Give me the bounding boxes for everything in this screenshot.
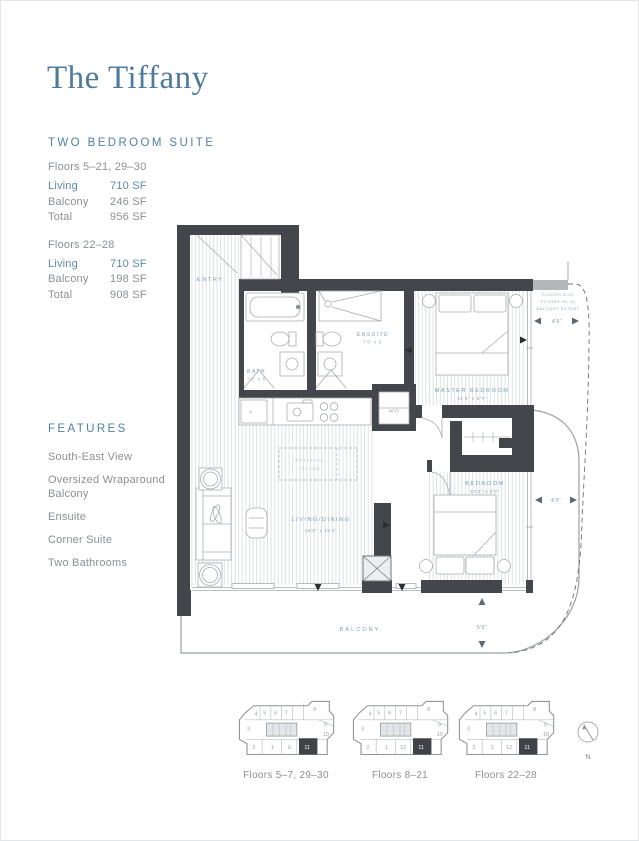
stat-label: Balcony	[48, 272, 110, 288]
kitchen-counter	[239, 398, 371, 425]
keyplan-unit: 4	[369, 712, 372, 718]
balcony-extent-note-line3: BALCONY EXTENT	[537, 306, 580, 311]
column-shaft	[363, 556, 391, 581]
bath-label: BATH	[247, 369, 266, 375]
keyplan-unit: 10	[323, 732, 329, 738]
floors-range: Floors 22–28	[48, 239, 178, 251]
keyplan-unit: 3	[247, 727, 250, 733]
keyplan-unit: 6	[274, 710, 277, 716]
stat-label: Living	[48, 179, 110, 195]
dim-east-upper: 4'6"	[552, 319, 562, 325]
stat-row: Living 710 SF	[48, 179, 178, 195]
keyplan-floors-5-7-29-30: 4 5 6 7 8 9 10 3 2 1 E 11 Floors 5–7, 29…	[231, 698, 341, 781]
keyplan-unit: 7	[505, 710, 508, 716]
keyplan-unit: 7	[285, 710, 288, 716]
floors-range: Floors 5–21, 29–30	[48, 161, 178, 173]
suite-stats: Floors 5–21, 29–30 Living 710 SF Balcony…	[48, 161, 178, 303]
washer-dryer	[379, 392, 409, 424]
ensuite-label: ENSUITE	[357, 332, 389, 338]
features-heading: FEATURES	[48, 423, 174, 435]
stat-row: Balcony 246 SF	[48, 195, 178, 211]
stat-row: Living 710 SF	[48, 257, 178, 273]
keyplan-unit-highlighted: 11	[304, 745, 310, 751]
entry-label: ENTRY	[197, 277, 223, 283]
keyplan-strip: 4 5 6 7 8 9 10 3 2 1 E 11 Floors 5–7, 29…	[0, 698, 639, 793]
bedroom-label: BEDROOM	[465, 481, 504, 487]
stat-row: Total 956 SF	[48, 210, 178, 226]
keyplan-unit: 2	[252, 745, 255, 751]
master-door-swing	[422, 418, 442, 438]
keyplan-floors-8-21: 4 5 6 7 8 9 10 3 2 1 12 11 Floors 8–21	[345, 698, 455, 781]
ensuite-shower	[319, 291, 381, 321]
keyplan-label: Floors 5–7, 29–30	[231, 770, 341, 781]
keyplan-unit: 3	[361, 727, 364, 733]
balcony-label: BALCONY	[340, 627, 381, 633]
master-bedroom-label: MASTER BEDROOM	[435, 388, 510, 394]
side-table	[199, 468, 222, 490]
keyplan-unit: E	[288, 745, 292, 751]
stat-row: Balcony 198 SF	[48, 272, 178, 288]
stat-value: 710 SF	[110, 257, 147, 273]
island-label-line1: OPTIONAL	[295, 458, 325, 463]
keyplan-label: Floors 22–28	[451, 770, 561, 781]
north-label: N	[585, 754, 590, 761]
stat-value: 956 SF	[110, 210, 147, 226]
stat-label: Balcony	[48, 195, 110, 211]
stat-value: 246 SF	[110, 195, 147, 211]
feature-item: Two Bathrooms	[48, 557, 174, 571]
north-compass: N	[572, 719, 604, 768]
keyplan-unit: 10	[437, 732, 443, 738]
keyplan-unit: 4	[255, 712, 258, 718]
master-bedroom-dims: 11'5" x 9'7"	[457, 396, 486, 401]
stat-value: 908 SF	[110, 288, 147, 304]
feature-item: Oversized Wraparound Balcony	[48, 474, 174, 501]
page-title: The Tiffany	[47, 60, 209, 97]
keyplan-unit: 4	[475, 712, 478, 718]
keyplan-unit: 7	[399, 710, 402, 716]
coffee-table	[246, 508, 267, 538]
suite-type-heading: TWO BEDROOM SUITE	[48, 137, 215, 149]
island-label-line2: ISLAND	[299, 466, 321, 471]
side-table	[198, 563, 222, 587]
dim-east-lower: 4'0"	[551, 498, 561, 504]
floor-plan: F OPTIONAL ISLAND W/D	[177, 222, 605, 670]
keyplan-unit-highlighted: 11	[524, 745, 530, 751]
feature-item: South-East View	[48, 451, 174, 465]
keyplan-unit: 8	[533, 707, 536, 713]
keyplan-unit: 9	[324, 722, 327, 728]
keyplan-unit: 12	[400, 745, 406, 751]
keyplan-floors-22-28: 4 5 6 7 8 9 10 3 2 1 12 11 Floors 22–28	[451, 698, 561, 781]
bedroom-dims: 10'5" x 9'2"	[470, 489, 499, 494]
keyplan-unit: 9	[438, 722, 441, 728]
keyplan-unit: 1	[491, 745, 494, 751]
bathtub	[246, 293, 304, 321]
keyplan-unit-highlighted: 11	[418, 745, 424, 751]
stat-value: 198 SF	[110, 272, 147, 288]
stat-label: Living	[48, 257, 110, 273]
bath-toilet	[271, 332, 296, 346]
living-dining-label: LIVING/DINING	[292, 517, 351, 523]
ensuite-dims: 7'6" x 5'	[363, 340, 383, 345]
keyplan-unit: 9	[544, 722, 547, 728]
ensuite-toilet	[316, 332, 341, 346]
stats-block-upper-floors: Floors 5–21, 29–30 Living 710 SF Balcony…	[48, 161, 178, 226]
keyplan-unit: 1	[271, 745, 274, 751]
stat-row: Total 908 SF	[48, 288, 178, 304]
dimension-5ft0	[479, 598, 486, 648]
balcony-extent-note-line1: FLOORS 5–21	[542, 292, 574, 297]
compass-icon	[578, 722, 598, 742]
keyplan-unit: 5	[263, 710, 266, 716]
living-dining-dims: 15'8" x 15'3"	[305, 528, 337, 533]
keyplan-unit: 2	[366, 745, 369, 751]
washer-dryer-label: W/D	[389, 409, 400, 415]
keyplan-unit: 3	[467, 727, 470, 733]
keyplan-label: Floors 8–21	[345, 770, 455, 781]
keyplan-unit: 10	[543, 732, 549, 738]
balcony-extent-note-line2: FLOORS 29–30	[541, 299, 576, 304]
stat-value: 710 SF	[110, 179, 147, 195]
keyplan-unit: 2	[472, 745, 475, 751]
bath-dims: 7'6" x 5'	[247, 377, 267, 382]
keyplan-unit: 12	[506, 745, 512, 751]
keyplan-unit: 8	[427, 707, 430, 713]
stats-block-lower-floors: Floors 22–28 Living 710 SF Balcony 198 S…	[48, 239, 178, 304]
ensuite-vanity-sink	[318, 352, 342, 376]
fridge-label: F	[249, 410, 252, 416]
keyplan-unit: 6	[494, 710, 497, 716]
keyplan-unit: 1	[385, 745, 388, 751]
stat-label: Total	[48, 210, 110, 226]
stat-label: Total	[48, 288, 110, 304]
dim-south: 5'0"	[477, 625, 487, 631]
features-list: FEATURES South-East View Oversized Wrapa…	[48, 423, 174, 580]
master-bed	[423, 293, 523, 375]
feature-item: Ensuite	[48, 511, 174, 525]
feature-item: Corner Suite	[48, 534, 174, 548]
sofa	[196, 488, 231, 560]
keyplan-unit: 5	[483, 710, 486, 716]
keyplan-unit: 6	[388, 710, 391, 716]
bath-vanity-sink	[280, 352, 304, 376]
keyplan-unit: 8	[313, 707, 316, 713]
keyplan-unit: 5	[377, 710, 380, 716]
